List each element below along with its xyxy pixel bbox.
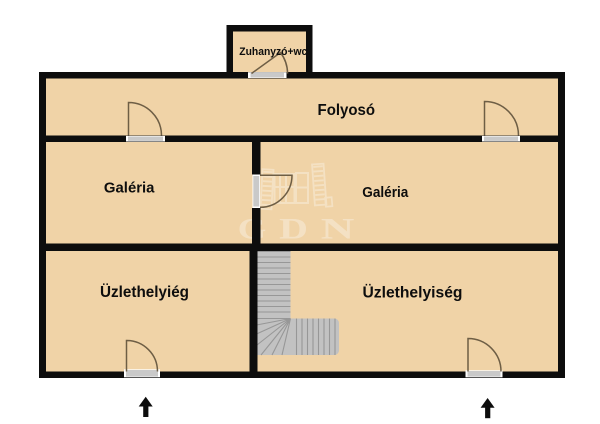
svg-text:Üzlethelyiség: Üzlethelyiség xyxy=(363,283,463,302)
svg-text:D: D xyxy=(279,212,308,245)
svg-text:N: N xyxy=(321,212,355,245)
svg-text:Üzlethelyiég: Üzlethelyiég xyxy=(100,282,189,301)
svg-text:Zuhanyzó+wc: Zuhanyzó+wc xyxy=(239,46,307,58)
svg-text:Galéria: Galéria xyxy=(362,185,409,201)
svg-text:Galéria: Galéria xyxy=(104,180,155,196)
svg-text:Folyosó: Folyosó xyxy=(318,102,376,119)
